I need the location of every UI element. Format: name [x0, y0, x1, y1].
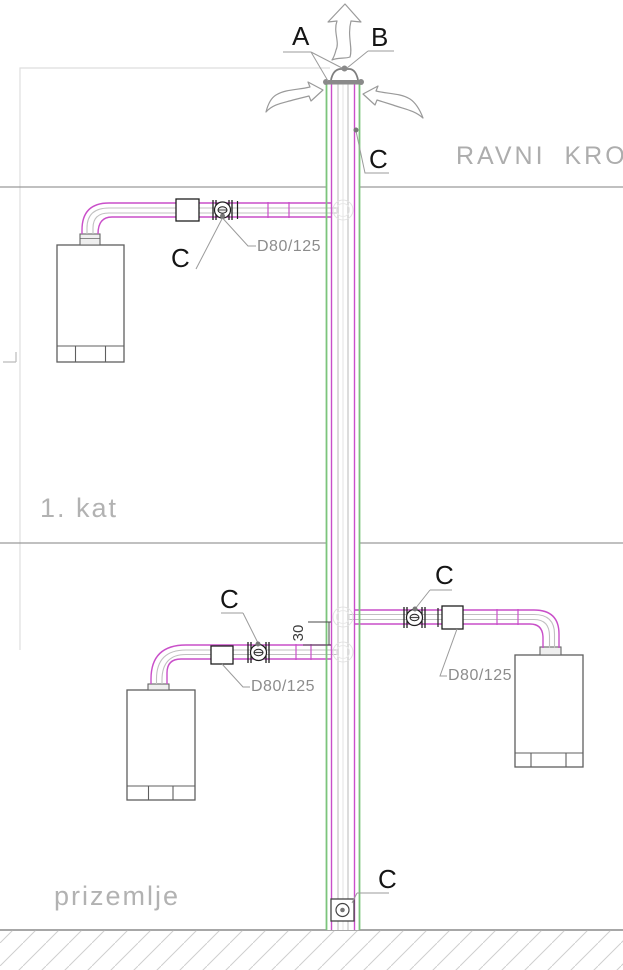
- floor-label-roof: RAVNI KROV: [456, 144, 623, 169]
- adapter-box-first-floor: [176, 199, 199, 221]
- boiler-flue-collar: [540, 647, 561, 655]
- boiler-flue-collar: [80, 234, 100, 245]
- pipe-size-first-floor: D80/125: [257, 239, 321, 255]
- intake-arrow-left-icon: [266, 82, 323, 112]
- adapter-box-ground-left: [211, 646, 233, 664]
- flue-pipe-first-floor: [82, 202, 338, 234]
- ground-hatch: [0, 931, 623, 970]
- callout-a: A: [292, 23, 310, 49]
- boiler-flue-collar: [148, 684, 169, 690]
- adapter-box-ground-right: [438, 606, 463, 629]
- intake-arrow-right-icon: [363, 86, 423, 118]
- boiler-first-floor: [57, 234, 124, 362]
- offset-dimension-text: 30: [291, 620, 307, 646]
- boiler-ground-right: [515, 647, 583, 767]
- callout-c-base: C: [378, 866, 398, 892]
- pipe-size-ground-right: D80/125: [448, 668, 512, 684]
- base-cleanout-fitting: [331, 899, 354, 921]
- pipe-size-ground-left: D80/125: [251, 679, 315, 695]
- chimney: [327, 84, 360, 930]
- callout-b: B: [371, 24, 389, 50]
- boiler-ground-left: [127, 684, 195, 800]
- leader-dots: [220, 128, 418, 647]
- callout-c-ground-left: C: [220, 586, 240, 612]
- exhaust-up-arrow-icon: [328, 4, 361, 60]
- flue-schematic-canvas: RAVNI KROV 1. kat prizemlje A B C C C C …: [0, 0, 623, 970]
- callout-c-ground-right: C: [435, 562, 455, 588]
- callout-c-first-floor: C: [171, 245, 191, 271]
- building-outline: [3, 68, 330, 650]
- floor-label-first-floor: 1. kat: [40, 495, 118, 522]
- floor-label-ground-floor: prizemlje: [54, 883, 180, 910]
- callout-c-roof: C: [369, 146, 389, 172]
